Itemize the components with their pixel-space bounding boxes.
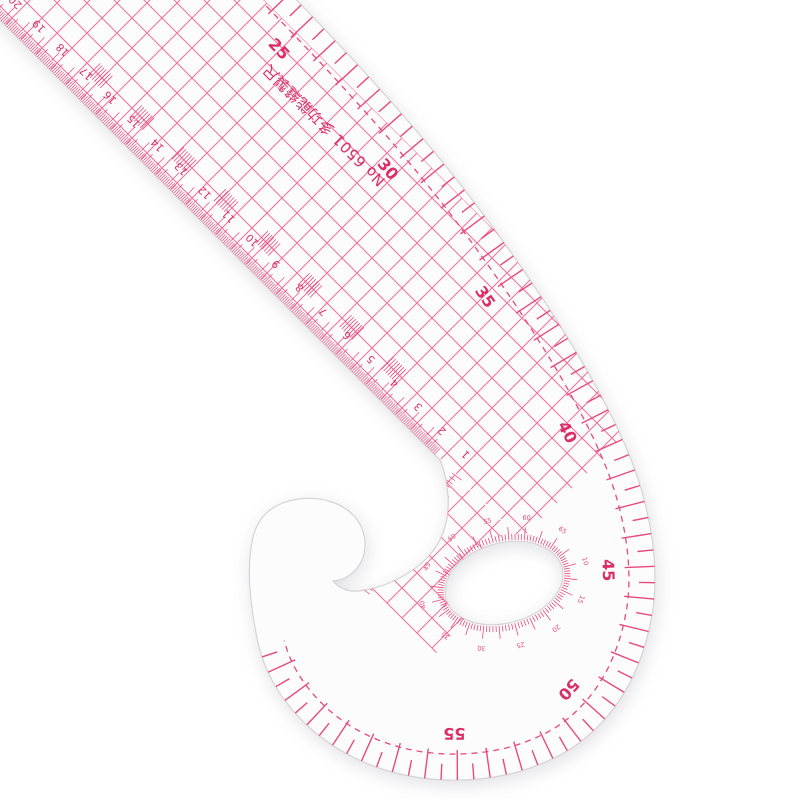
product-photo: 2530354045505512345678910111213141516171… [0, 0, 800, 800]
curve-scale-label: 45 [598, 559, 618, 582]
curve-scale-label: 55 [443, 724, 465, 743]
protractor-label: 30 [477, 644, 486, 653]
protractor-label: 60 [522, 513, 531, 522]
french-curve-ruler-image: 2530354045505512345678910111213141516171… [0, 0, 800, 800]
